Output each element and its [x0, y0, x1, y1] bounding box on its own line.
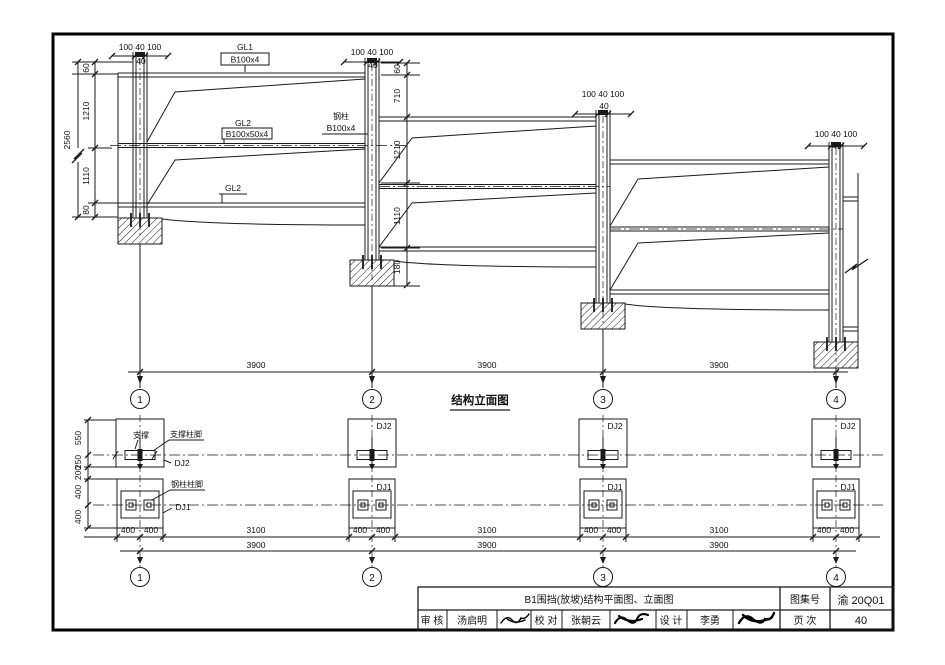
- bay2-beams: [379, 117, 610, 267]
- span-2: 3900: [478, 360, 497, 370]
- pdim-400b: 400: [73, 510, 83, 524]
- dj1-label-2: DJ1: [376, 482, 391, 492]
- role-design-label: 设 计: [660, 614, 683, 627]
- axis-3: 3: [600, 395, 606, 406]
- p400-5: 400: [584, 525, 598, 535]
- gl2-label: GL2: [235, 118, 251, 128]
- dj1-label-3: DJ1: [607, 482, 622, 492]
- plan-axis-3: 3: [600, 573, 606, 584]
- role-check-name: 汤启明: [457, 614, 487, 627]
- cap-sub-2: 40: [368, 60, 378, 70]
- title-block: B1围挡(放坡)结构平面图、立面图 图集号 渝 20Q01 审 核 汤启明 校 …: [418, 587, 893, 630]
- plan-bottom-dims: 400 400 3100 400 400 3100 400 400 3100 4…: [84, 525, 880, 587]
- plan-dj1-row: [117, 479, 859, 528]
- span-1: 3900: [247, 360, 266, 370]
- column-base-label: 钢柱柱脚: [171, 479, 203, 489]
- dj2-label-1: DJ2: [174, 458, 189, 468]
- cap-dim-2: 100 40 100: [351, 47, 394, 57]
- pdim-550: 550: [73, 431, 83, 445]
- steel-column-label: 钢柱: [333, 111, 349, 121]
- drawing-canvas: 100 40 100 40 100 40 100 40 100 40 100 4…: [0, 0, 945, 665]
- axis-1: 1: [137, 395, 143, 406]
- signature-proofreader: [615, 614, 648, 623]
- p3900-2: 3900: [478, 540, 497, 550]
- plan-axis-4: 4: [833, 573, 839, 584]
- cap-dim-4: 100 40 100: [815, 129, 858, 139]
- pdim-400a: 400: [73, 485, 83, 499]
- elevation-column-3: [572, 110, 634, 329]
- drawing-sheet: 100 40 100 40 100 40 100 40 100 40 100 4…: [0, 0, 945, 665]
- role-design-name: 李勇: [700, 614, 720, 627]
- dim-80: 80: [81, 205, 91, 215]
- p3900-3: 3900: [710, 540, 729, 550]
- dj2-label-2: DJ2: [376, 421, 391, 431]
- role-proof-label: 校 对: [535, 614, 558, 627]
- elevation-span-dims: 3900 3900 3900 1 2 3 4: [128, 244, 848, 409]
- axis-2: 2: [369, 395, 375, 406]
- brace-base-symbols: [113, 437, 851, 470]
- plan-axis-1: 1: [137, 573, 143, 584]
- plan-labels: 支撑 支撑柱脚 DJ2 钢柱柱脚 DJ1 DJ2 DJ2 DJ2 DJ1 DJ1…: [133, 421, 856, 513]
- axis-4: 4: [833, 395, 839, 406]
- cap-sub-1: 40: [136, 56, 146, 66]
- p3900-1: 3900: [247, 540, 266, 550]
- p400-1: 400: [121, 525, 135, 535]
- p3100-1: 3100: [247, 525, 266, 535]
- gl1-spec: B100x4: [231, 55, 260, 65]
- bay1-beams: [110, 73, 407, 225]
- dim-1210: 1210: [81, 101, 91, 120]
- signature-designer: [739, 613, 774, 623]
- plan-axis-2: 2: [369, 573, 375, 584]
- dj1-label-1: DJ1: [175, 502, 190, 512]
- dj1-label-4: DJ1: [840, 482, 855, 492]
- p3100-3: 3100: [710, 525, 729, 535]
- dim-1110: 1110: [81, 167, 91, 185]
- p400-4: 400: [376, 525, 390, 535]
- p400-7: 400: [817, 525, 831, 535]
- plan-view: 支撑 支撑柱脚 DJ2 钢柱柱脚 DJ1 DJ2 DJ2 DJ2 DJ1 DJ1…: [73, 415, 884, 587]
- p400-3: 400: [353, 525, 367, 535]
- dim-60b: 60: [392, 64, 402, 74]
- elevation-mid-chain: 60 710 1210 1110 180: [381, 60, 420, 288]
- atlas-number: 渝 20Q01: [837, 593, 884, 607]
- plan-dj2-row: [113, 419, 860, 470]
- role-proof-name: 张朝云: [571, 615, 601, 627]
- dim-710: 710: [392, 89, 402, 103]
- gl1-label: GL1: [237, 42, 253, 52]
- gl2-spec: B100x50x4: [226, 129, 269, 139]
- dim-60: 60: [81, 63, 91, 73]
- dim-1110b: 1110: [392, 207, 402, 225]
- cap-dim-1: 100 40 100: [119, 42, 162, 52]
- right-stub: [843, 173, 868, 350]
- span-3: 3900: [710, 360, 729, 370]
- sheet-border: [53, 34, 893, 630]
- brace-label: 支撑: [133, 430, 149, 440]
- steel-column-spec: B100x4: [327, 123, 356, 133]
- elevation-left-chain: 2560 60 1210 1110 80: [62, 59, 133, 220]
- gl2b-label: GL2: [225, 183, 241, 193]
- dim-2560: 2560: [62, 130, 72, 149]
- role-check-label: 审 核: [421, 614, 444, 627]
- beam-labels: GL1 B100x4 GL2 B100x50x4 钢柱 B100x4 GL2: [219, 42, 368, 203]
- cap-sub-3: 40: [599, 101, 609, 111]
- plan-left-chain: 550 250 200 400 400: [73, 417, 117, 531]
- atlas-label: 图集号: [790, 593, 820, 606]
- bay3-beams: [610, 160, 843, 310]
- dim-180: 180: [392, 260, 402, 274]
- elevation-view: 100 40 100 40 100 40 100 40 100 40 100 4…: [62, 42, 868, 410]
- p400-6: 400: [607, 525, 621, 535]
- page-label: 页 次: [794, 614, 817, 627]
- cap-sub-4: 40: [832, 141, 842, 151]
- signature-checker: [501, 614, 529, 623]
- pdim-200: 200: [73, 466, 83, 480]
- dj2-label-3: DJ2: [607, 421, 622, 431]
- dj2-label-4: DJ2: [840, 421, 855, 431]
- page-number: 40: [855, 615, 867, 627]
- p400-8: 400: [840, 525, 854, 535]
- elevation-title: 结构立面图: [450, 393, 510, 410]
- brace-base-label: 支撑柱脚: [170, 429, 202, 439]
- sheet-title: B1围挡(放坡)结构平面图、立面图: [525, 593, 674, 606]
- column-base-symbols: [121, 491, 855, 518]
- dim-1210b: 1210: [392, 140, 402, 159]
- elevation-title-text: 结构立面图: [450, 393, 509, 407]
- p400-2: 400: [144, 525, 158, 535]
- cap-dim-3: 100 40 100: [582, 89, 625, 99]
- p3100-2: 3100: [478, 525, 497, 535]
